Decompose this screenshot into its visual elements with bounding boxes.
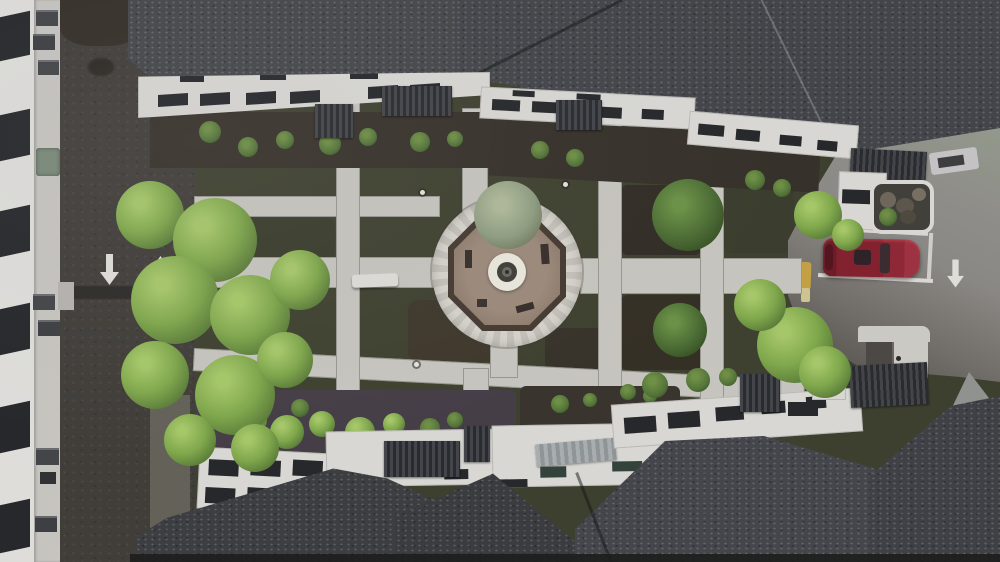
- lawn-patch: [545, 328, 605, 370]
- entry-awning: [556, 100, 602, 130]
- ac-unit: [33, 34, 55, 50]
- path-light: [420, 190, 425, 195]
- crosswalk-stub: [58, 282, 74, 310]
- shrub: [447, 131, 463, 147]
- tree-canopy: [131, 256, 219, 344]
- roof-vent: [180, 75, 204, 82]
- tree-canopy: [164, 414, 216, 466]
- shrub: [620, 384, 636, 400]
- bench: [352, 273, 398, 288]
- balcony-window: [0, 499, 30, 553]
- shrub: [238, 137, 258, 157]
- left-building-facade: [0, 0, 34, 562]
- window: [200, 92, 230, 106]
- skylight: [540, 466, 566, 477]
- tree-canopy-gray: [474, 181, 542, 249]
- entry-awning: [382, 86, 452, 116]
- window: [624, 416, 657, 434]
- window: [158, 93, 188, 107]
- gazebo-furniture: [540, 244, 549, 265]
- shrub: [583, 393, 597, 407]
- window: [788, 402, 818, 416]
- ac-unit: [38, 320, 60, 336]
- window: [779, 135, 802, 147]
- car-windshield: [880, 243, 891, 273]
- path-light: [414, 362, 419, 367]
- ac-unit: [40, 472, 56, 484]
- balcony-window: [0, 205, 30, 257]
- window: [817, 140, 838, 152]
- ac-unit: [38, 60, 59, 75]
- tree-canopy: [257, 332, 313, 388]
- arrow-head: [947, 276, 964, 288]
- shrub: [291, 399, 309, 417]
- car-sunroof: [854, 250, 871, 265]
- tree-canopy: [832, 219, 864, 251]
- tree-canopy: [799, 346, 851, 398]
- ac-unit: [33, 294, 55, 310]
- shrub: [686, 368, 710, 392]
- shrub: [719, 368, 737, 386]
- window: [667, 411, 700, 429]
- balcony-window: [0, 11, 30, 61]
- gazebo-furniture: [465, 250, 472, 268]
- window: [290, 90, 320, 104]
- balcony-window: [0, 303, 30, 355]
- window: [246, 91, 276, 105]
- post-dot: [896, 356, 901, 361]
- road-stain: [88, 58, 114, 76]
- balcony-window: [0, 401, 30, 453]
- roof-plane-corner: [870, 396, 1000, 562]
- parking-arrow-down: [947, 260, 964, 288]
- entry-awning-large: [849, 362, 929, 408]
- entry-awning: [740, 374, 780, 412]
- island-rock: [900, 210, 916, 224]
- bottom-shadow-edge: [130, 554, 1000, 562]
- shrub: [531, 141, 549, 159]
- window: [642, 109, 664, 120]
- tree-canopy: [121, 341, 189, 409]
- aerial-courtyard-photo: [0, 0, 1000, 562]
- ac-unit: [36, 148, 60, 176]
- entry-awning: [384, 441, 460, 477]
- island-shrub: [879, 208, 897, 226]
- solar-panel: [535, 438, 617, 467]
- arrow-head: [100, 272, 119, 285]
- island-rock: [912, 188, 926, 201]
- gazebo-furniture: [477, 299, 487, 307]
- shrub: [410, 132, 430, 152]
- shrub: [745, 170, 765, 190]
- shrub: [551, 395, 569, 413]
- car-hood-shadow: [825, 244, 833, 270]
- ac-unit: [36, 10, 58, 26]
- shrub: [773, 179, 791, 197]
- shrub: [359, 128, 377, 146]
- tree-canopy-dark: [653, 303, 707, 357]
- island-rock: [880, 192, 896, 208]
- fountain-spout: [505, 270, 509, 274]
- ac-unit: [36, 448, 59, 465]
- arrow-shaft: [106, 254, 113, 274]
- road-arrow-down: [100, 254, 119, 285]
- shrub: [566, 149, 584, 167]
- shrub: [447, 412, 463, 428]
- tree-canopy-dark: [652, 179, 724, 251]
- entry-awning: [464, 426, 490, 462]
- roof-plane-topleft: [128, 0, 508, 84]
- window: [698, 123, 725, 136]
- tree-canopy: [734, 279, 786, 331]
- shrub: [276, 131, 294, 149]
- downspout: [937, 155, 964, 169]
- roof-vent: [513, 90, 535, 97]
- window: [492, 99, 521, 111]
- window: [735, 129, 760, 142]
- shrub: [642, 372, 668, 398]
- tree-canopy: [231, 424, 279, 472]
- shrub: [199, 121, 221, 143]
- ac-unit: [35, 516, 57, 532]
- yellow-curb-faded: [801, 288, 810, 302]
- entry-awning: [315, 104, 353, 138]
- arrow-shaft: [952, 260, 958, 278]
- path-light: [563, 182, 568, 187]
- balcony-window: [0, 109, 30, 161]
- tree-canopy: [270, 250, 330, 310]
